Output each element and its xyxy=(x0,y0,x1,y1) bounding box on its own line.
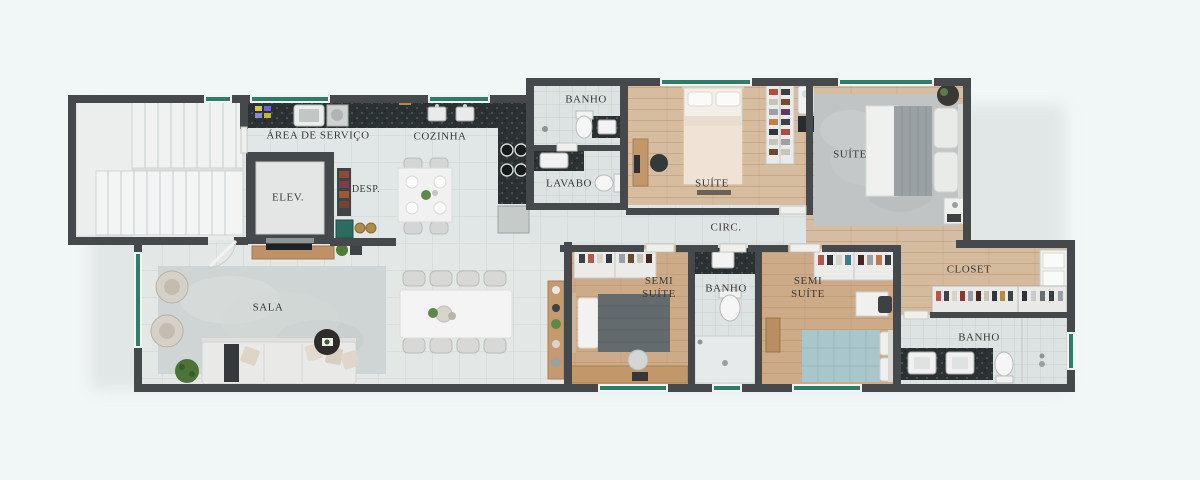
bed-semi-1 xyxy=(570,293,670,353)
laundry-counter xyxy=(243,103,380,128)
room-label-sala: SALA xyxy=(253,302,284,315)
window-suite-1 xyxy=(660,78,752,86)
room-label-area-servico: ÁREA DE SERVIÇO xyxy=(266,130,369,143)
wardrobe-suite-1 xyxy=(766,84,794,164)
semi-1-door xyxy=(646,244,674,252)
window-bath-central xyxy=(712,384,742,392)
room-label-banho-superior: BANHO xyxy=(565,94,607,107)
window-living xyxy=(134,252,142,348)
room-label-suite-1: SUÍTE xyxy=(695,178,729,191)
window-laundry xyxy=(250,95,330,103)
room-label-banho-master: BANHO xyxy=(958,332,1000,345)
window-kitchen xyxy=(428,95,490,103)
bath-master-door xyxy=(904,311,928,319)
fridge xyxy=(498,206,529,233)
floor-plant xyxy=(175,359,199,383)
room-label-desp: DESP. xyxy=(352,184,380,196)
room-label-circ: CIRC. xyxy=(711,222,742,235)
stairs xyxy=(76,102,243,236)
window-semi-2 xyxy=(792,384,862,392)
room-label-closet: CLOSET xyxy=(947,264,992,277)
room-label-banho-central: BANHO xyxy=(705,283,747,296)
bath-top-door xyxy=(557,143,577,151)
floor-plan xyxy=(0,0,1200,480)
room-label-elev: ELEV. xyxy=(272,192,304,205)
room-label-lavabo: LAVABO xyxy=(546,178,592,191)
wardrobe-semi-1 xyxy=(574,249,656,278)
sideboard xyxy=(548,281,564,379)
semi-2-door xyxy=(790,244,820,252)
window-suite-2 xyxy=(838,78,934,86)
nightstand-suite-2 xyxy=(944,198,966,224)
coffee-table xyxy=(314,329,340,355)
room-label-suite-2: SUÍTE xyxy=(833,149,867,162)
window-semi-1 xyxy=(598,384,668,392)
window-top-stairs xyxy=(204,95,232,103)
side-table-suite-2 xyxy=(937,84,959,106)
service-door xyxy=(241,127,247,153)
room-label-semi-suite-2: SEMI SUÍTE xyxy=(782,275,834,301)
bath-central-door xyxy=(720,244,746,252)
window-bath-master xyxy=(1067,332,1075,370)
suite-1-door xyxy=(780,206,806,214)
floor-plan-canvas: ÁREA DE SERVIÇO COZINHA ELEV. DESP. BANH… xyxy=(0,0,1200,480)
room-label-semi-suite-1: SEMI SUÍTE xyxy=(633,275,685,301)
room-label-cozinha: COZINHA xyxy=(414,131,467,144)
